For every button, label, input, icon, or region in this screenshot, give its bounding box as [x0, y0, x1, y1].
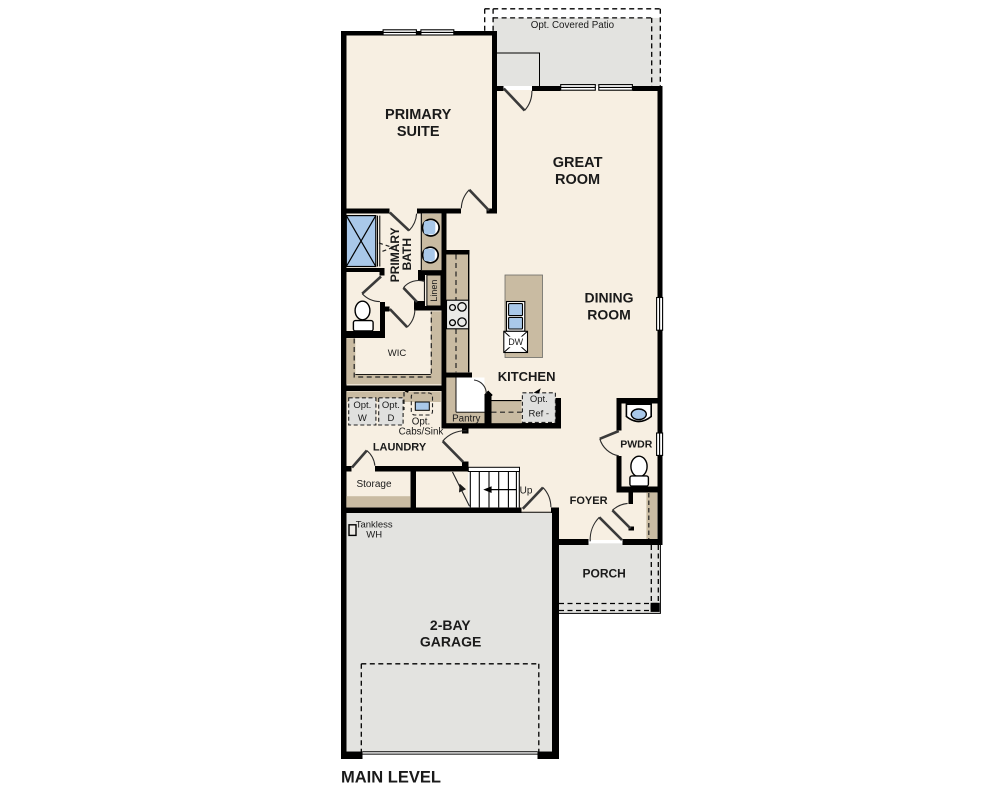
svg-text:Ref -: Ref - — [529, 408, 550, 419]
svg-text:Storage: Storage — [356, 479, 391, 490]
svg-text:PRIMARY: PRIMARY — [385, 107, 452, 123]
svg-text:LAUNDRY: LAUNDRY — [373, 441, 427, 453]
svg-text:D: D — [387, 413, 394, 424]
svg-text:KITCHEN: KITCHEN — [498, 369, 556, 384]
svg-text:Pantry: Pantry — [452, 413, 480, 424]
svg-text:Up: Up — [520, 485, 533, 496]
svg-text:Opt.: Opt. — [382, 400, 400, 411]
svg-text:Linen: Linen — [429, 280, 439, 302]
svg-text:DW: DW — [508, 337, 523, 347]
svg-text:WH: WH — [366, 530, 382, 541]
svg-text:Cabs/Sink: Cabs/Sink — [399, 426, 444, 437]
svg-text:BATH: BATH — [400, 238, 414, 270]
svg-text:PWDR: PWDR — [620, 439, 652, 451]
svg-text:GARAGE: GARAGE — [420, 634, 481, 650]
svg-text:Opt.: Opt. — [353, 400, 371, 411]
svg-text:W: W — [358, 413, 367, 424]
svg-text:Opt. Covered Patio: Opt. Covered Patio — [531, 20, 615, 31]
svg-text:PORCH: PORCH — [583, 567, 626, 581]
svg-text:ROOM: ROOM — [587, 307, 631, 323]
svg-text:WIC: WIC — [388, 348, 407, 359]
svg-text:Opt.: Opt. — [530, 394, 548, 405]
svg-text:DINING: DINING — [585, 290, 634, 306]
svg-text:2-BAY: 2-BAY — [430, 617, 471, 633]
svg-text:ROOM: ROOM — [555, 172, 600, 188]
svg-text:SUITE: SUITE — [397, 124, 440, 140]
svg-text:GREAT: GREAT — [553, 155, 603, 171]
svg-text:MAIN LEVEL: MAIN LEVEL — [341, 769, 441, 787]
svg-text:FOYER: FOYER — [570, 495, 608, 507]
